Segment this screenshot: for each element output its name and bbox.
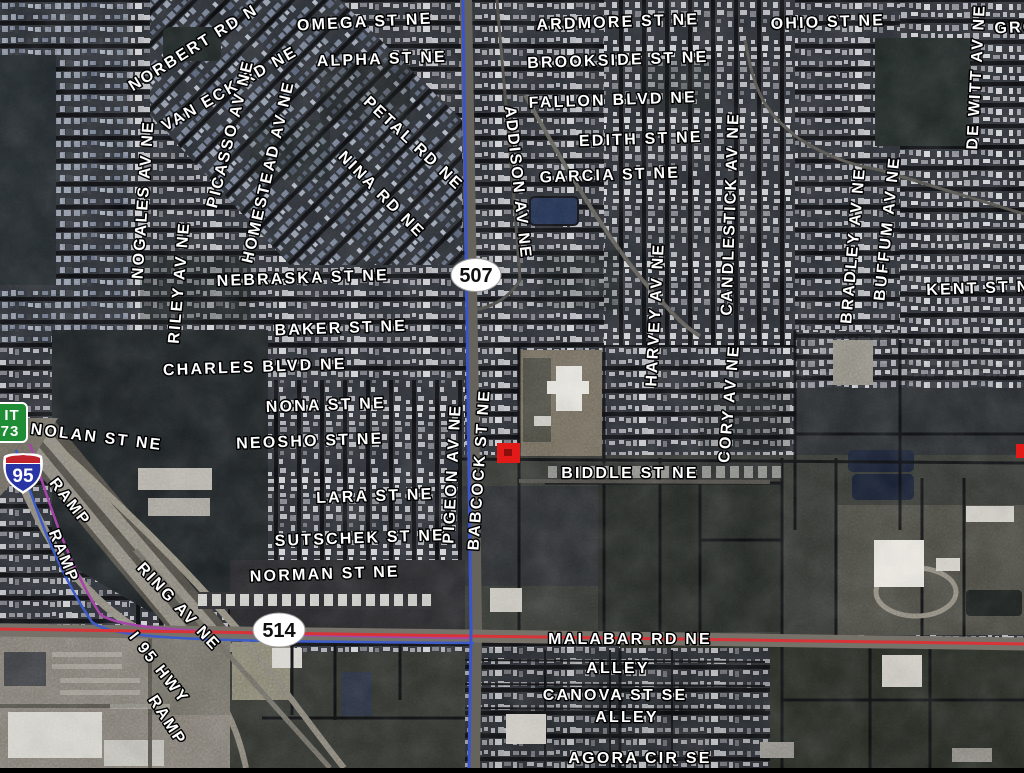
svg-text:73: 73 bbox=[1, 423, 20, 440]
svg-text:GROVE: GROVE bbox=[994, 18, 1024, 37]
svg-text:KENT ST NE: KENT ST NE bbox=[926, 278, 1024, 299]
svg-text:IT: IT bbox=[4, 407, 19, 424]
svg-text:AGORA CIR SE: AGORA CIR SE bbox=[568, 750, 711, 767]
svg-text:514: 514 bbox=[262, 620, 296, 642]
svg-text:CANOVA ST SE: CANOVA ST SE bbox=[543, 687, 688, 704]
svg-text:ALLEY: ALLEY bbox=[595, 709, 658, 726]
svg-text:BIDDLE ST NE: BIDDLE ST NE bbox=[561, 465, 699, 482]
svg-text:ALLEY: ALLEY bbox=[586, 660, 649, 677]
svg-text:507: 507 bbox=[459, 265, 492, 287]
svg-text:MALABAR RD NE: MALABAR RD NE bbox=[548, 631, 712, 648]
svg-text:95: 95 bbox=[12, 466, 34, 487]
